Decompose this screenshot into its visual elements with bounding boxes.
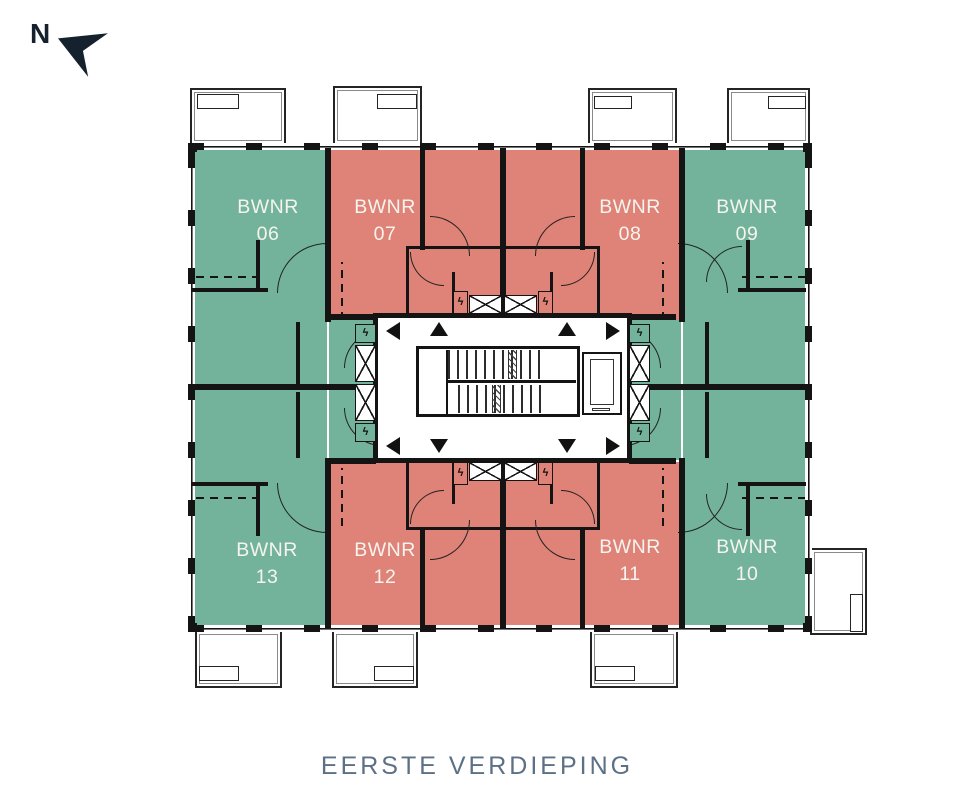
stair-landing-line: [446, 380, 576, 383]
building-corner: [803, 143, 812, 152]
bolt-glyph: ϟ: [543, 468, 549, 479]
unit-label-08: BWNR 08: [585, 194, 675, 248]
electrical-box-icon: ϟ: [453, 291, 468, 314]
party-wall: [679, 458, 685, 628]
shaft-x-icon: [629, 345, 650, 382]
balcony-planter: [594, 96, 632, 109]
unit-number: 13: [222, 564, 312, 591]
balcony-planter: [768, 96, 806, 109]
interior-wall: [329, 458, 376, 464]
unit-label-13: BWNR 13: [222, 537, 312, 591]
dashed-line: [196, 497, 262, 499]
electrical-box-icon: ϟ: [538, 462, 553, 485]
interior-wall: [329, 314, 376, 320]
bolt-glyph: ϟ: [637, 427, 643, 438]
dashed-line: [662, 468, 664, 526]
stair-hatch: [508, 350, 517, 379]
unit-label-12: BWNR 12: [340, 537, 430, 591]
building-corner: [188, 143, 197, 152]
balcony-planter: [377, 94, 417, 109]
direction-triangle-icon: [430, 322, 448, 336]
unit-name: BWNR: [702, 194, 792, 221]
direction-triangle-icon: [430, 439, 448, 453]
elevator-door: [592, 408, 610, 411]
party-wall: [192, 384, 376, 390]
compass-arrow-icon: [58, 30, 110, 78]
party-wall: [679, 148, 685, 322]
shaft-x-icon: [504, 295, 537, 314]
direction-triangle-icon: [558, 439, 576, 453]
dashed-line: [742, 276, 806, 278]
shaft-x-icon: [469, 295, 502, 314]
stair-hatch: [492, 385, 501, 413]
dashed-line: [341, 468, 343, 526]
bolt-glyph: ϟ: [637, 328, 643, 339]
balcony-planter: [199, 666, 239, 681]
interior-wall: [629, 314, 676, 320]
party-wall: [500, 460, 506, 628]
direction-triangle-icon: [606, 437, 620, 455]
electrical-box-icon: ϟ: [538, 291, 553, 314]
party-wall: [325, 458, 331, 628]
unit-name: BWNR: [222, 537, 312, 564]
stair-flight-edge: [446, 350, 448, 414]
stair-treads: [458, 385, 544, 413]
shaft-x-icon: [355, 345, 376, 382]
interior-wall: [296, 322, 300, 384]
dashed-line: [196, 276, 262, 278]
unit-name: BWNR: [585, 194, 675, 221]
bolt-glyph: ϟ: [363, 427, 369, 438]
unit-name: BWNR: [340, 194, 430, 221]
interior-wall: [256, 486, 260, 536]
unit-label-09: BWNR 09: [702, 194, 792, 248]
shaft-x-icon: [469, 462, 502, 481]
electrical-box-icon: ϟ: [453, 462, 468, 485]
unit-name: BWNR: [340, 537, 430, 564]
party-wall: [500, 148, 506, 318]
dashed-line: [662, 262, 664, 320]
unit-number: 10: [702, 561, 792, 588]
electrical-box-icon: ϟ: [629, 324, 650, 343]
bolt-glyph: ϟ: [458, 297, 464, 308]
interior-wall: [705, 392, 709, 458]
stair-treads: [448, 350, 544, 379]
dashed-line: [341, 262, 343, 320]
unit-number: 06: [223, 221, 313, 248]
balcony-planter: [197, 94, 239, 109]
unit-label-06: BWNR 06: [223, 194, 313, 248]
unit-name: BWNR: [702, 534, 792, 561]
balcony-planter: [850, 594, 863, 632]
interior-wall: [629, 458, 676, 464]
balcony-planter: [374, 666, 414, 681]
unit-label-11: BWNR 11: [585, 534, 675, 588]
unit-label-07: BWNR 07: [340, 194, 430, 248]
floorplan-canvas: N: [0, 0, 954, 792]
elevator-car: [590, 359, 614, 405]
building-corner: [188, 623, 197, 632]
unit-number: 07: [340, 221, 430, 248]
electrical-box-icon: ϟ: [355, 423, 376, 442]
shaft-x-icon: [629, 384, 650, 421]
unit-number: 11: [585, 561, 675, 588]
interior-wall: [296, 392, 300, 458]
elevator: [582, 352, 622, 415]
page-title: EERSTE VERDIEPING: [0, 752, 954, 781]
unit-number: 09: [702, 221, 792, 248]
balcony-planter: [595, 666, 635, 681]
unit-number: 08: [585, 221, 675, 248]
bolt-glyph: ϟ: [363, 328, 369, 339]
compass-north-label: N: [30, 18, 50, 50]
electrical-box-icon: ϟ: [355, 324, 376, 343]
unit-label-10: BWNR 10: [702, 534, 792, 588]
bolt-glyph: ϟ: [458, 468, 464, 479]
electrical-box-icon: ϟ: [629, 423, 650, 442]
direction-triangle-icon: [386, 322, 400, 340]
direction-triangle-icon: [558, 322, 576, 336]
direction-triangle-icon: [606, 322, 620, 340]
shaft-x-icon: [355, 384, 376, 421]
unit-name: BWNR: [585, 534, 675, 561]
bolt-glyph: ϟ: [543, 297, 549, 308]
shaft-x-icon: [504, 462, 537, 481]
interior-wall: [705, 322, 709, 384]
interior-wall: [746, 486, 750, 536]
party-wall: [629, 384, 810, 390]
direction-triangle-icon: [386, 437, 400, 455]
building-corner: [803, 623, 812, 632]
unit-number: 12: [340, 564, 430, 591]
party-wall: [325, 148, 331, 322]
unit-name: BWNR: [223, 194, 313, 221]
dashed-line: [742, 497, 806, 499]
